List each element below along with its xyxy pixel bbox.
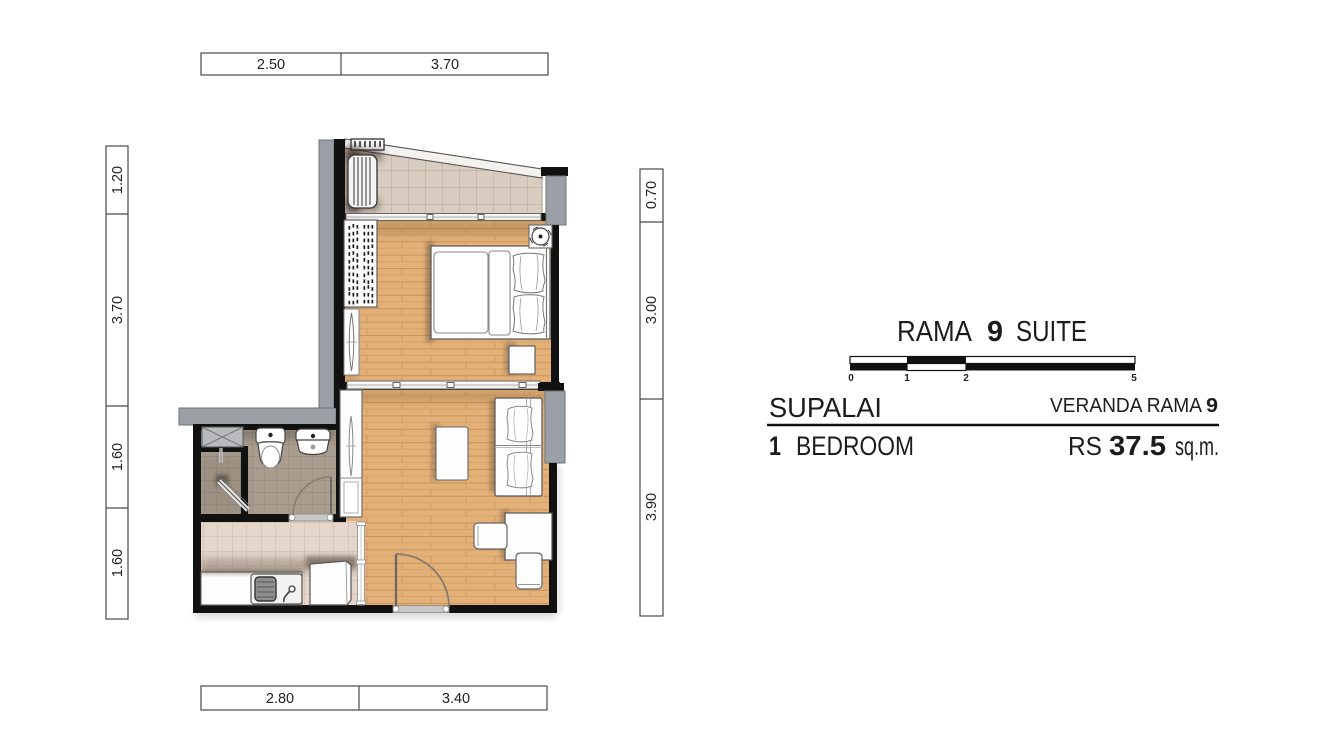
svg-text:1: 1: [769, 431, 781, 461]
svg-text:2.50: 2.50: [257, 57, 285, 73]
svg-text:37.5: 37.5: [1109, 430, 1166, 461]
svg-text:BEDROOM: BEDROOM: [796, 431, 914, 461]
svg-text:2.80: 2.80: [266, 691, 294, 707]
svg-text:3.90: 3.90: [644, 493, 660, 521]
svg-text:3.00: 3.00: [644, 296, 660, 324]
svg-text:0: 0: [848, 373, 854, 384]
svg-text:2: 2: [963, 373, 969, 384]
svg-text:sq.m.: sq.m.: [1175, 431, 1219, 461]
svg-text:3.70: 3.70: [431, 57, 459, 73]
svg-text:3.40: 3.40: [442, 691, 470, 707]
svg-text:1.60: 1.60: [110, 443, 126, 471]
svg-text:9: 9: [987, 316, 1003, 348]
svg-text:3.70: 3.70: [110, 296, 126, 324]
svg-text:5: 5: [1131, 373, 1137, 384]
svg-text:1: 1: [904, 373, 910, 384]
svg-text:SUITE: SUITE: [1016, 316, 1087, 348]
svg-text:1.60: 1.60: [110, 549, 126, 577]
svg-text:9: 9: [1206, 395, 1218, 417]
svg-text:SUPALAI: SUPALAI: [769, 392, 882, 423]
svg-text:VERANDA RAMA: VERANDA RAMA: [1050, 395, 1203, 417]
svg-text:1.20: 1.20: [110, 166, 126, 194]
svg-text:RS: RS: [1068, 431, 1102, 461]
svg-text:0.70: 0.70: [644, 181, 660, 209]
svg-text:RAMA: RAMA: [897, 316, 973, 348]
